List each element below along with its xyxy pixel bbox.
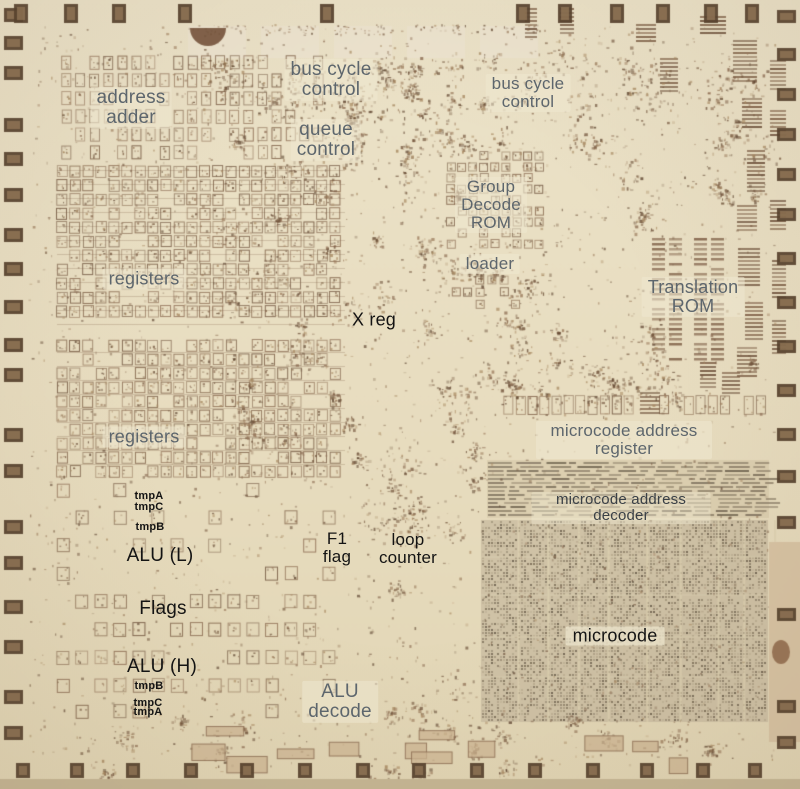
die-photo: address adder bus cycle control queue co…	[0, 0, 800, 789]
die-texture	[0, 0, 800, 789]
